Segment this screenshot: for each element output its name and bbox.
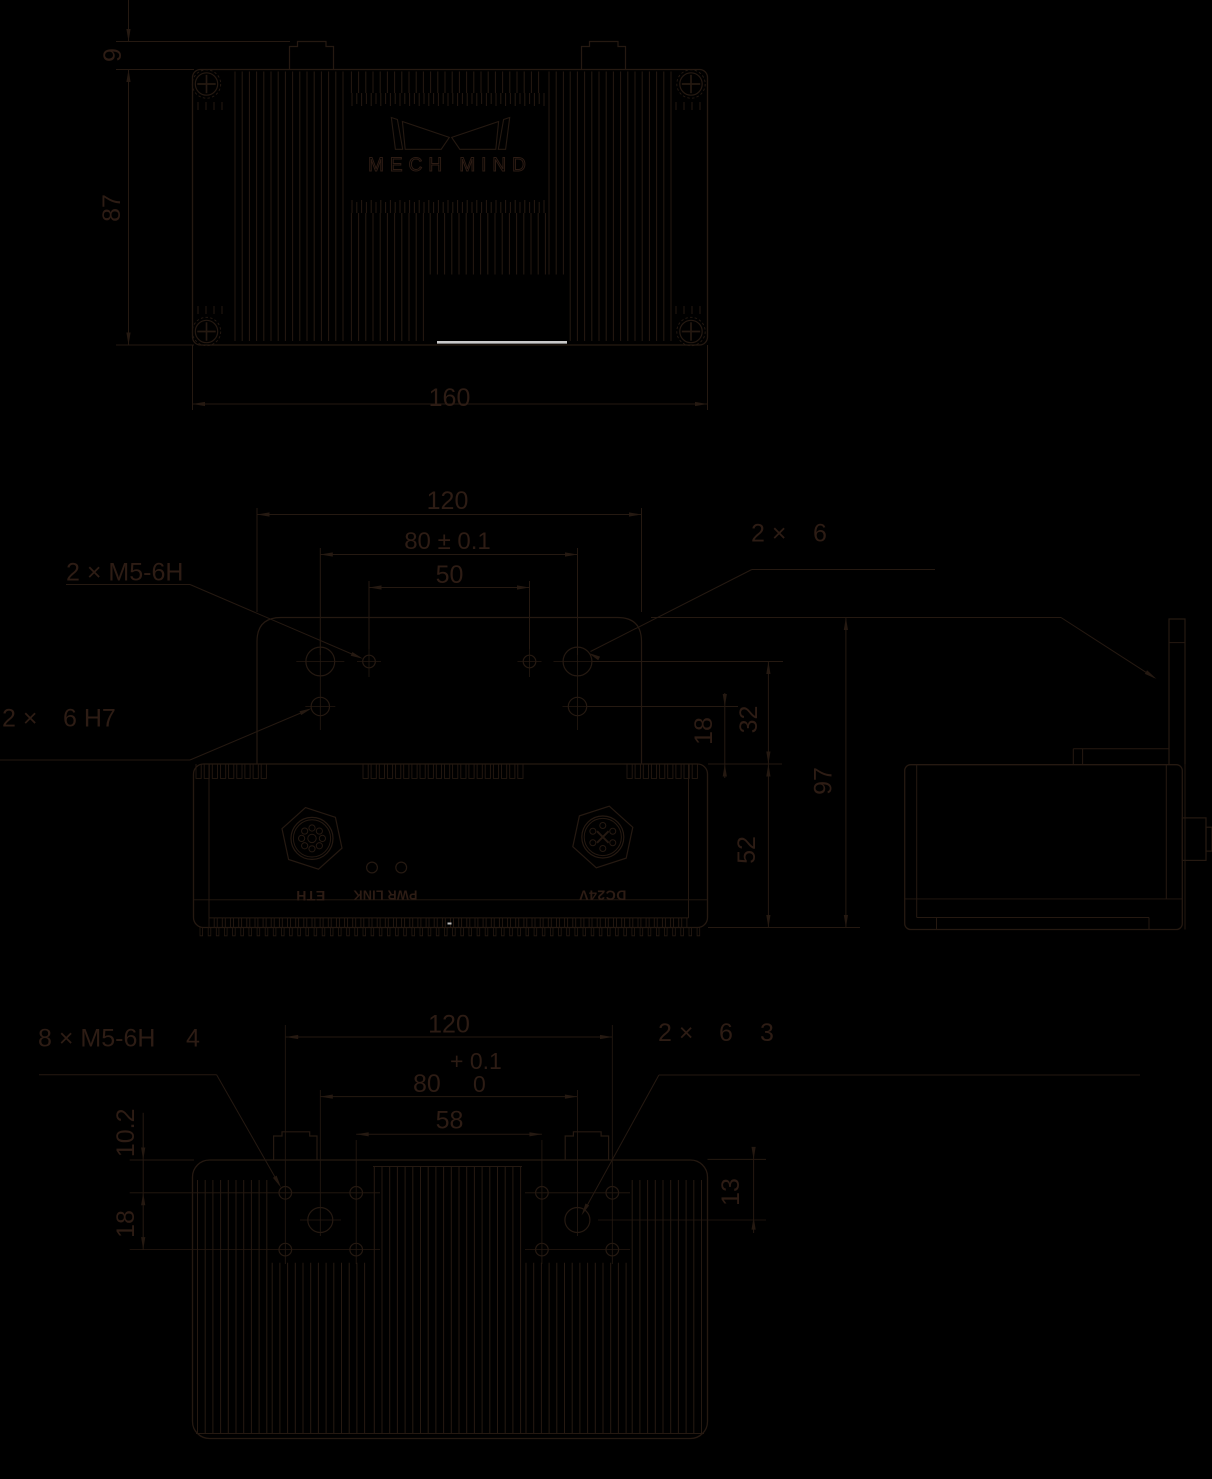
svg-text:13: 13 — [717, 1178, 745, 1206]
svg-text:87: 87 — [98, 194, 126, 222]
svg-text:2 ×: 2 × — [751, 520, 786, 548]
svg-text:8 × M5-6H: 8 × M5-6H — [38, 1025, 155, 1053]
svg-text:MECH MIND: MECH MIND — [368, 155, 532, 176]
svg-text:50: 50 — [436, 561, 464, 589]
svg-text:3: 3 — [760, 1019, 774, 1047]
svg-text:6 H7: 6 H7 — [63, 705, 116, 733]
svg-text:18: 18 — [690, 717, 718, 745]
svg-text:52: 52 — [733, 836, 761, 864]
svg-text:97: 97 — [810, 767, 838, 795]
svg-text:80: 80 — [413, 1070, 441, 1098]
svg-text:9: 9 — [99, 48, 127, 62]
svg-text:120: 120 — [427, 487, 469, 515]
svg-text:120: 120 — [428, 1011, 470, 1039]
svg-text:2 × M5-6H: 2 × M5-6H — [66, 559, 183, 587]
svg-text:ETH: ETH — [296, 888, 326, 904]
svg-text:80 ± 0.1: 80 ± 0.1 — [404, 528, 491, 555]
svg-text:2 ×: 2 × — [2, 705, 37, 733]
svg-text:0: 0 — [473, 1071, 486, 1097]
svg-text:2 ×: 2 × — [658, 1019, 693, 1047]
svg-text:160: 160 — [429, 384, 471, 412]
svg-text:PWR LINK: PWR LINK — [353, 888, 417, 902]
svg-text:18: 18 — [112, 1210, 140, 1238]
svg-text:10.2: 10.2 — [112, 1108, 140, 1157]
svg-text:4: 4 — [186, 1025, 200, 1053]
svg-text:DC24V: DC24V — [579, 887, 627, 903]
svg-text:6: 6 — [813, 520, 827, 548]
svg-text:58: 58 — [436, 1107, 464, 1135]
svg-text:32: 32 — [735, 706, 763, 734]
svg-text:6: 6 — [719, 1019, 733, 1047]
